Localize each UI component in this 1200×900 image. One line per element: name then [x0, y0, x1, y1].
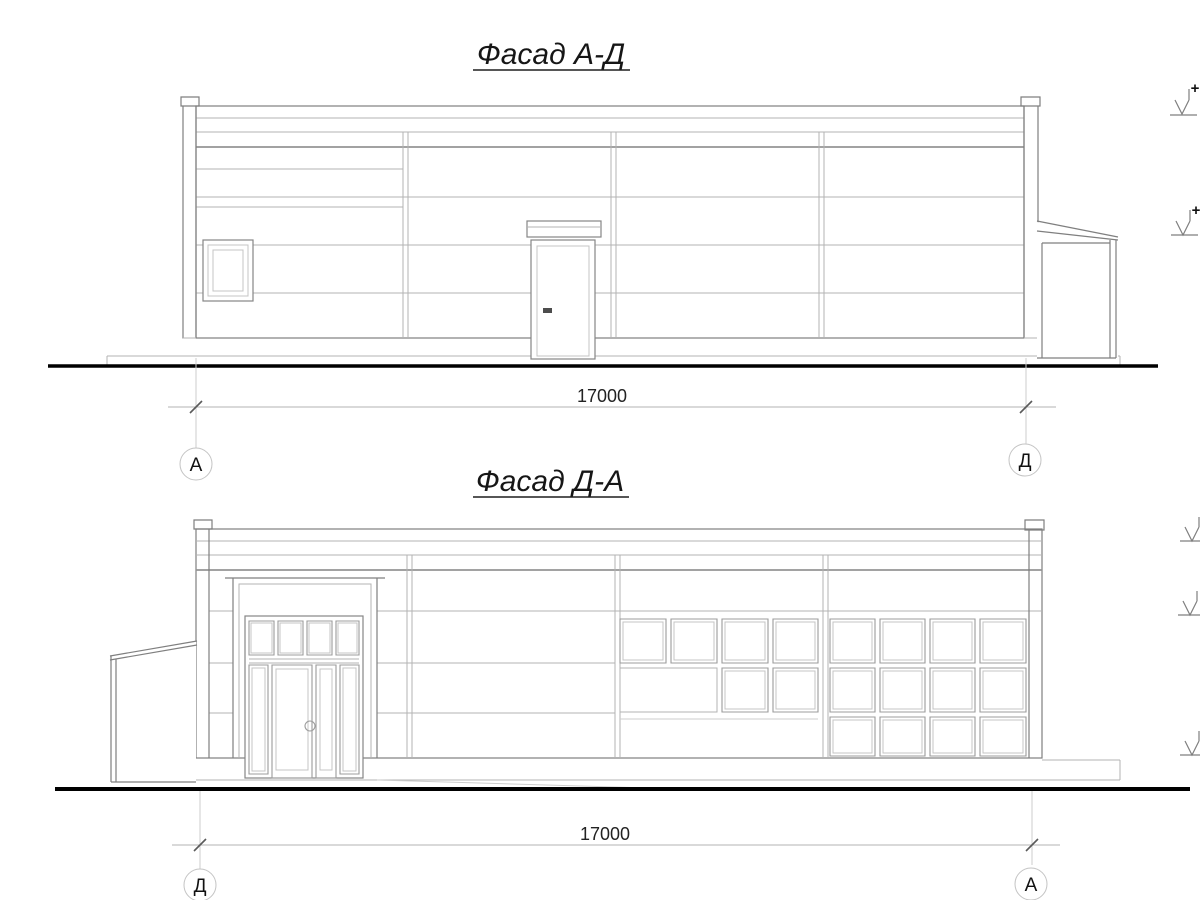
f2-dimension-label: 17000 — [580, 824, 630, 844]
f1-plinth — [107, 338, 1120, 366]
facade-ad: 17000 А Д + + Фасад А-Д — [48, 38, 1200, 480]
elevation-mark-icon — [1180, 517, 1200, 541]
f2-entrance-portal — [225, 578, 385, 778]
facade-da: 17000 Д А Фасад Д-А — [55, 465, 1200, 900]
f2-parapet-bands — [196, 541, 1042, 555]
f2-elevation-marks — [1178, 517, 1200, 755]
f1-door-handle-icon — [543, 308, 552, 313]
f1-window-frame — [203, 240, 253, 301]
f1-elevation-marks: + + — [1170, 80, 1200, 235]
f2-axis-right-label: А — [1025, 875, 1038, 896]
f2-annex — [110, 641, 197, 782]
f1-window — [203, 240, 253, 301]
drawing-canvas: 17000 А Д + + Фасад А-Д — [0, 0, 1200, 900]
f1-wall-outline — [196, 106, 1024, 338]
elevation-mark-icon — [1180, 731, 1200, 755]
f1-plus-top: + — [1191, 80, 1200, 97]
f2-axis-markers: Д А — [184, 868, 1047, 900]
f2-door-assembly-frame — [245, 616, 363, 778]
f2-annex-fill — [111, 641, 196, 782]
f1-axis-left-label: А — [190, 455, 203, 476]
f2-dimension: 17000 — [172, 791, 1060, 869]
f2-blank-panel — [620, 668, 717, 712]
f1-plus-mid: + — [1192, 202, 1200, 219]
elevation-drawing-svg: 17000 А Д + + Фасад А-Д — [0, 0, 1200, 900]
f1-annex — [1037, 221, 1118, 358]
f2-axis-left-label: Д — [194, 876, 207, 897]
f1-axis-right-label: Д — [1019, 451, 1032, 472]
f1-door-canopy — [527, 221, 601, 237]
f1-parapet-bands — [196, 118, 1024, 132]
f1-siding-lines — [196, 169, 1024, 293]
f1-door — [527, 221, 601, 359]
f1-dimension: 17000 — [168, 358, 1056, 448]
f1-title: Фасад А-Д — [477, 38, 625, 71]
f1-dimension-label: 17000 — [577, 386, 627, 406]
elevation-mark-icon — [1178, 591, 1200, 615]
f1-door-frame — [531, 240, 595, 359]
f2-title: Фасад Д-А — [476, 465, 624, 498]
f1-panel-seams — [403, 132, 824, 338]
f2-ramp-line — [377, 780, 648, 788]
